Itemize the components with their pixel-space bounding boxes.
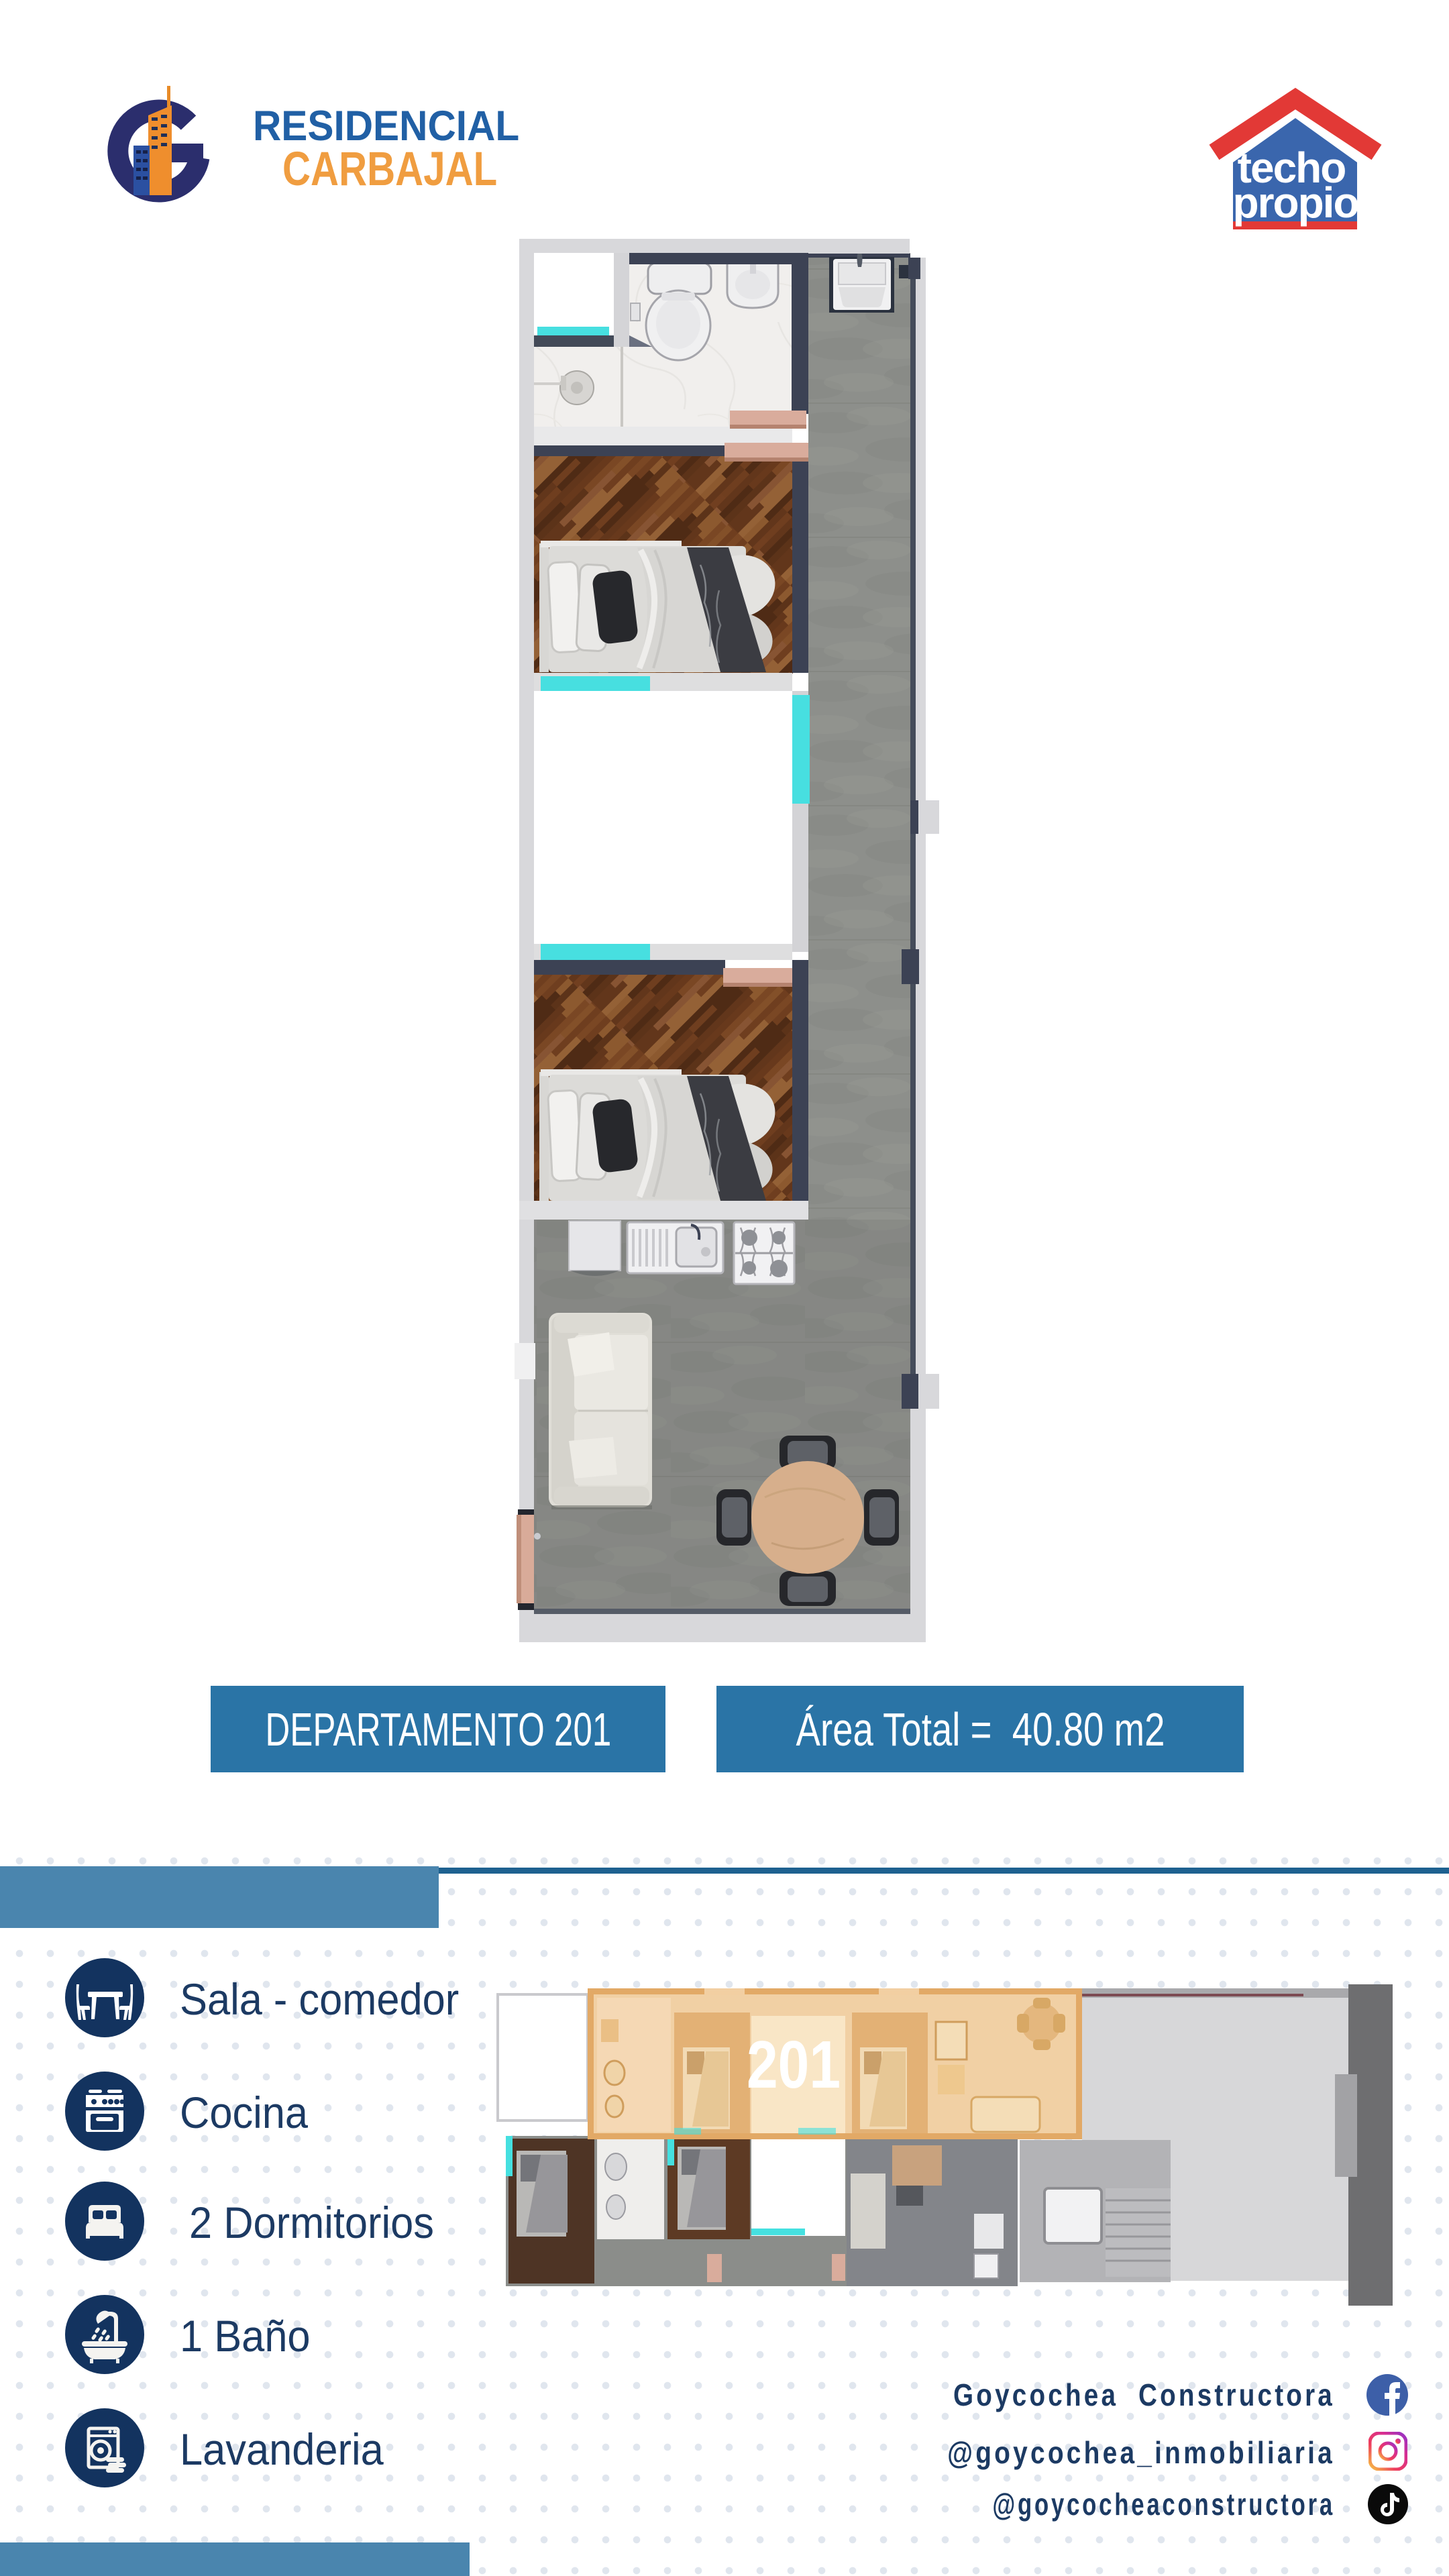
svg-text:201: 201 (747, 2027, 841, 2102)
svg-text:propio: propio (1232, 178, 1358, 227)
